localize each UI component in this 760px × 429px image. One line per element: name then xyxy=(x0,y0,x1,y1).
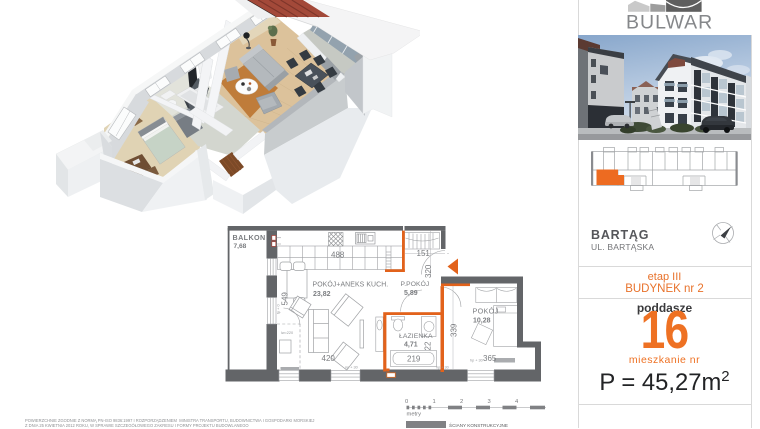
svg-text:POKÓJ+ANEKS KUCH.: POKÓJ+ANEKS KUCH. xyxy=(313,280,389,289)
svg-text:0: 0 xyxy=(405,399,408,405)
svg-text:4,71: 4,71 xyxy=(404,342,418,349)
svg-text:1: 1 xyxy=(433,399,436,405)
svg-text:488: 488 xyxy=(331,251,345,260)
svg-text:4: 4 xyxy=(515,399,519,405)
svg-text:3: 3 xyxy=(488,399,491,405)
svg-text:219: 219 xyxy=(407,355,421,364)
svg-text:420: 420 xyxy=(322,354,336,363)
svg-text:320: 320 xyxy=(424,264,433,278)
svg-text:5,89: 5,89 xyxy=(404,290,418,297)
svg-text:365: 365 xyxy=(483,354,497,363)
svg-text:10,28: 10,28 xyxy=(473,318,491,325)
svg-text:P.POKÓJ: P.POKÓJ xyxy=(401,279,430,288)
svg-text:metry: metry xyxy=(407,412,422,418)
svg-text:hp + 30: hp + 30 xyxy=(436,366,449,370)
svg-text:ŁAZIENKA: ŁAZIENKA xyxy=(399,333,433,340)
svg-text:BULWAR: BULWAR xyxy=(626,12,713,33)
svg-text:np + 30: np + 30 xyxy=(345,366,358,370)
svg-text:23,82: 23,82 xyxy=(313,291,331,298)
svg-text:lw=220: lw=220 xyxy=(281,331,293,335)
svg-text:ŚCIANY KONSTRUKCYJNE: ŚCIANY KONSTRUKCYJNE xyxy=(449,421,508,428)
svg-text:22: 22 xyxy=(424,341,433,350)
svg-text:549: 549 xyxy=(281,292,290,306)
svg-text:339: 339 xyxy=(450,323,459,337)
svg-text:BALKON: BALKON xyxy=(233,233,266,242)
svg-text:POKÓJ: POKÓJ xyxy=(473,307,499,316)
svg-text:2: 2 xyxy=(460,399,463,405)
svg-text:tp + 0: tp + 0 xyxy=(277,304,281,314)
svg-text:7,68: 7,68 xyxy=(234,243,247,250)
svg-text:151: 151 xyxy=(417,249,431,258)
svg-text:hp + 30: hp + 30 xyxy=(470,359,483,363)
